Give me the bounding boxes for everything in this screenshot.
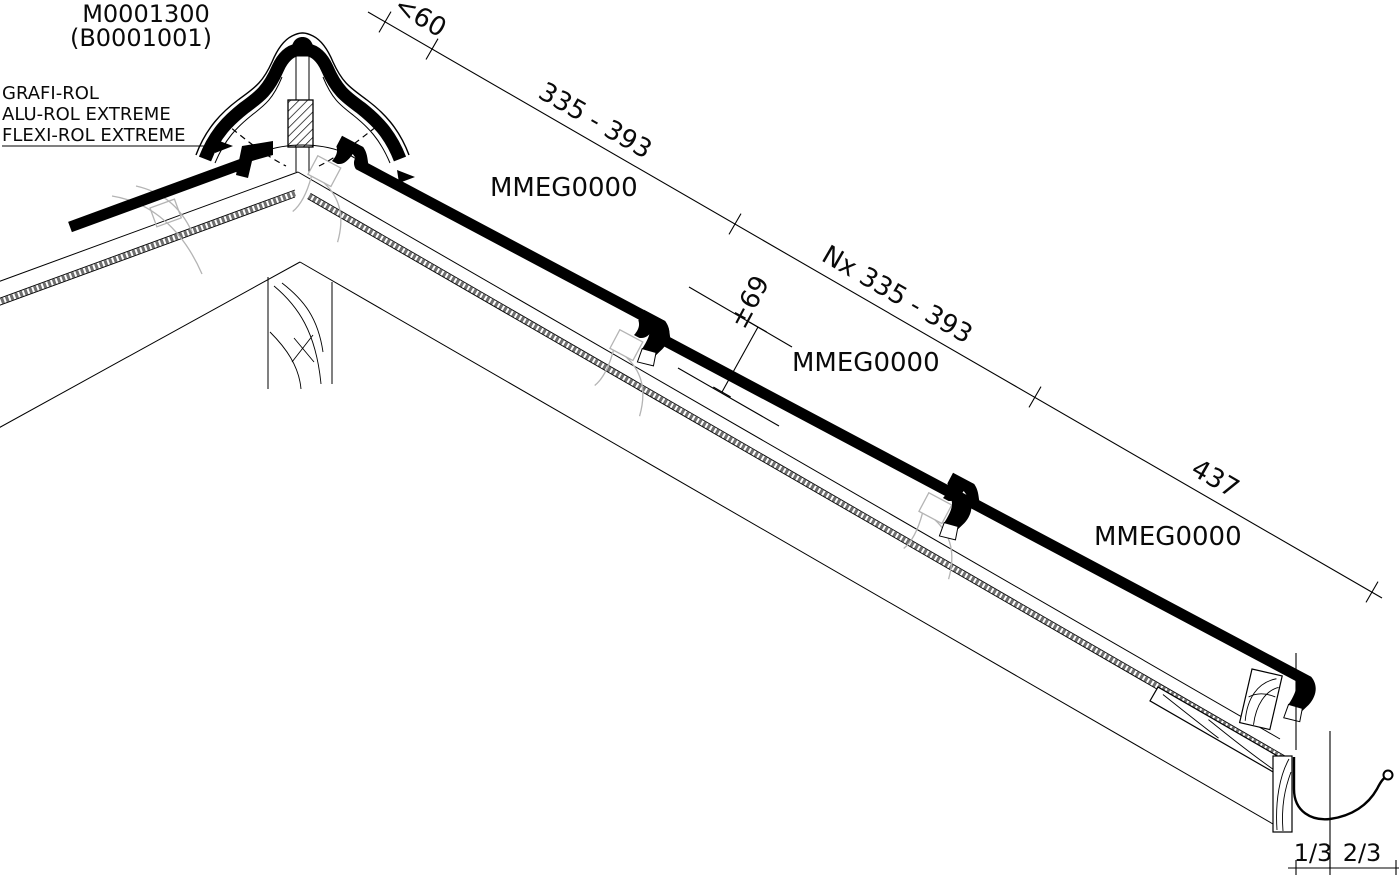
tile-1-label: MMEG0000 [490, 173, 638, 203]
product-label-flexi-rol: FLEXI-ROL EXTREME [2, 125, 185, 146]
roof-detail-drawing: M0001300 (B0001001) GRAFI-ROL ALU-ROL EX… [0, 0, 1400, 875]
paper-background [0, 0, 1400, 875]
drawing-subtitle: (B0001001) [70, 24, 212, 52]
product-label-alu-rol: ALU-ROL EXTREME [2, 104, 171, 125]
product-label-grafi-rol: GRAFI-ROL [2, 83, 99, 104]
tile-2-label: MMEG0000 [792, 348, 940, 378]
fascia-board [1273, 756, 1292, 832]
dim-gutter-front: 1/3 [1294, 839, 1333, 867]
tile-3-label: MMEG0000 [1094, 522, 1242, 552]
dim-gutter-back: 2/3 [1343, 839, 1382, 867]
gutter-bead [1384, 771, 1393, 780]
